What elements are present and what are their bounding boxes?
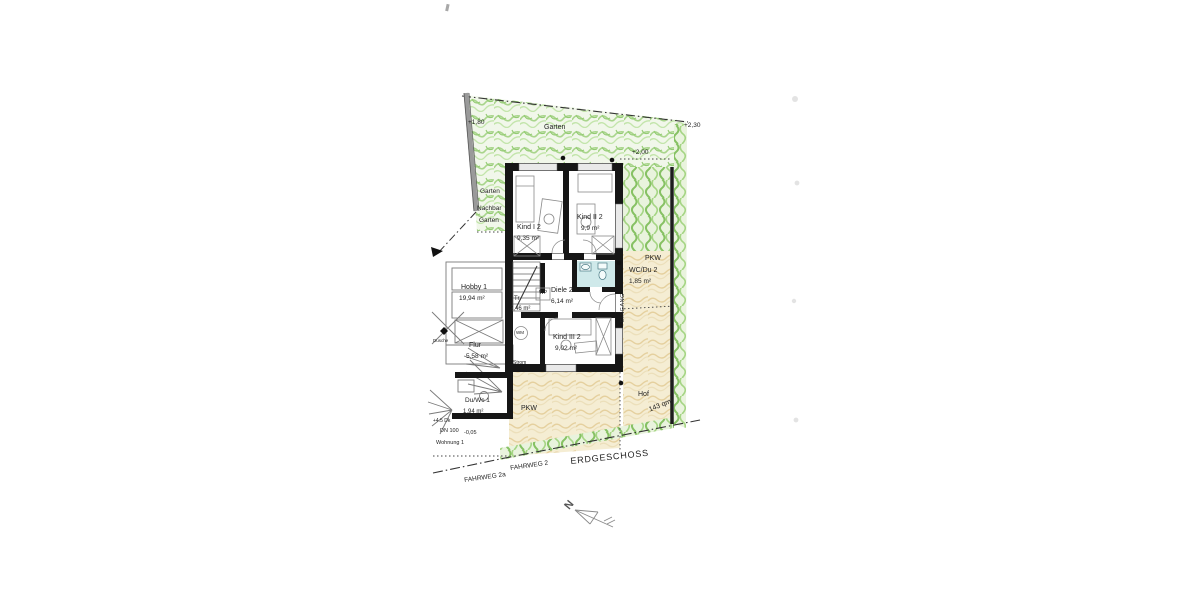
room-label-duwc1: Du/Wc 1 bbox=[465, 398, 490, 405]
room-label-wcdu2: WC/Du 2 bbox=[629, 267, 657, 274]
site-plan-drawing bbox=[0, 0, 1200, 600]
room-area-hobby: 19,94 m² bbox=[459, 296, 485, 303]
room-area-duwc1: 1,94 m² bbox=[463, 409, 483, 415]
garden-top-label: Garten bbox=[544, 124, 565, 131]
room-area-diele: 6,14 m² bbox=[551, 299, 573, 306]
north-arrow-icon bbox=[575, 510, 615, 527]
shower-label: Dusche bbox=[433, 339, 448, 344]
neighbor-garden-label-1: Nachbar bbox=[477, 206, 502, 213]
parking-bottom-label: PKW bbox=[521, 405, 537, 412]
roof-note-label: +4.5 Dk bbox=[433, 419, 450, 424]
property-line-left bbox=[437, 212, 476, 254]
room-area-kind2: 9,9 m² bbox=[581, 226, 599, 233]
entrance-label: EINGANG bbox=[621, 293, 627, 322]
parking-right-label: PKW bbox=[645, 255, 661, 262]
staircase bbox=[513, 262, 540, 311]
garden-left-label: Garten bbox=[480, 189, 500, 196]
garden-strip-right-of-house bbox=[623, 167, 670, 251]
drain-label: DN 100 bbox=[440, 429, 459, 435]
hedge-band-right bbox=[674, 124, 687, 428]
neighbor-garden-label-2: Garten bbox=[479, 218, 499, 225]
unit-label: Wohnung 1 bbox=[436, 441, 464, 447]
room-label-flur: Flur bbox=[469, 342, 481, 349]
entry-level-label: -0,05 bbox=[464, 431, 477, 437]
room-area-wcdu2: 1,85 m² bbox=[629, 279, 651, 286]
room-area-tr: 2,46 m² bbox=[510, 306, 530, 312]
room-label-kind3: Kind III 2 bbox=[553, 334, 581, 341]
room-label-kind2: Kind II 2 bbox=[577, 214, 603, 221]
room-label-kind1: Kind I 2 bbox=[517, 224, 541, 231]
room-label-hobby: Hobby 1 bbox=[461, 284, 487, 291]
hof-court-tan bbox=[623, 309, 672, 431]
scanned-floor-plan-page: { "drawing": { "floor_label": "ERDGESCHO… bbox=[0, 0, 1200, 600]
hof-label: Hof bbox=[638, 391, 649, 398]
stair-diamond-marker bbox=[440, 327, 448, 335]
power-label: Strom bbox=[513, 361, 526, 366]
level-mark-180: +1,80 bbox=[468, 120, 484, 127]
room-label-diele: Diele 2 bbox=[551, 287, 573, 294]
room-label-tr: Tr. bbox=[514, 296, 521, 302]
level-mark-200: +2,00 bbox=[632, 150, 648, 157]
survey-arrow bbox=[431, 247, 443, 257]
washing-machine-label: WM bbox=[516, 331, 524, 336]
level-mark-230: +2,30 bbox=[684, 123, 700, 130]
room-area-kind3: 9,02 m² bbox=[555, 346, 577, 353]
room-area-flur: 5,58 m² bbox=[466, 354, 488, 361]
room-area-kind1: 9,35 m² bbox=[517, 236, 539, 243]
heat-pump-label: WP bbox=[539, 291, 547, 296]
